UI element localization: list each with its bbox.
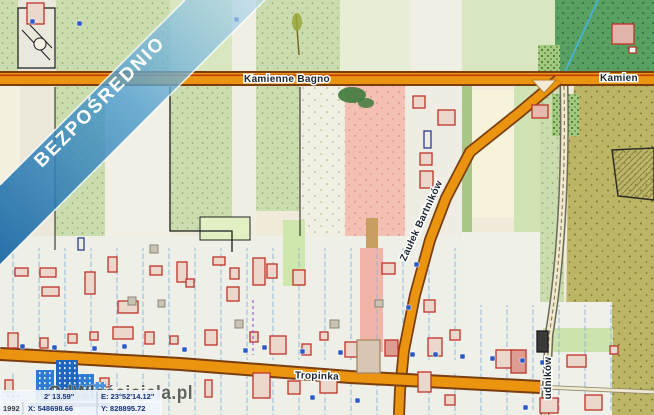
coordinates-bar: 2' 13.59" E: 23°52'14.12" 1992 X: 548698… <box>0 391 161 415</box>
coord-lat-fragment: 2' 13.59" <box>44 392 75 401</box>
coord-lon: E: 23°52'14.12" <box>101 392 155 401</box>
road-label-kamien: Kamien <box>600 73 638 84</box>
coord-crs: 1992 <box>3 404 20 413</box>
road-label-tropinka: Tropinka <box>295 370 340 383</box>
road-label-kamienne-bagno: Kamienne Bagno <box>244 74 330 85</box>
coord-y: Y: 828895.72 <box>101 404 145 413</box>
map-screenshot: Kamienne Bagno Kamien Tropinka Zaułek Ba… <box>0 0 654 415</box>
road-label-udnikow: udników <box>543 357 554 400</box>
map-image[interactable]: Kamienne Bagno Kamien Tropinka Zaułek Ba… <box>0 0 654 415</box>
coord-x: X: 548698.66 <box>28 404 73 413</box>
